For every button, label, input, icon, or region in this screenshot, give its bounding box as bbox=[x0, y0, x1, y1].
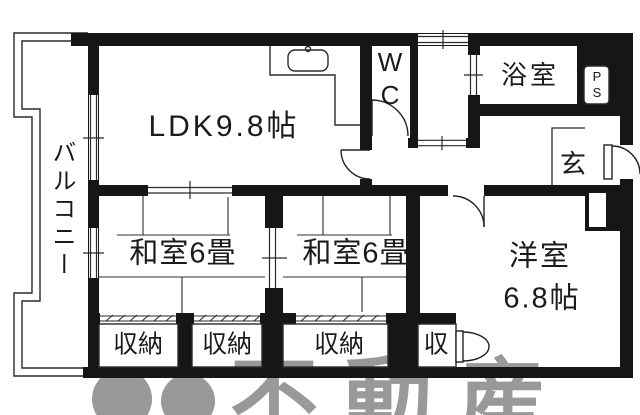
room-label-ldk: LDK9.8帖 bbox=[148, 112, 299, 142]
room-label-japanese-room-2: 和室6畳 bbox=[302, 240, 409, 269]
room-label-closet-1: 収納 bbox=[113, 333, 163, 358]
room-label-closet-small: 収 bbox=[423, 333, 448, 358]
room-label-genkan: 玄 bbox=[560, 151, 586, 177]
room-label-wc: WC bbox=[377, 47, 403, 113]
floorplan-page: 不動産 bbox=[0, 0, 640, 415]
room-label-closet-2: 収納 bbox=[202, 333, 252, 358]
room-label-western-room-size: 6.8帖 bbox=[503, 285, 580, 314]
room-label-ps: PS bbox=[591, 69, 604, 101]
room-label-closet-3: 収納 bbox=[314, 333, 364, 358]
room-label-balcony: バルコニー bbox=[49, 140, 73, 280]
room-label-japanese-room-1: 和室6畳 bbox=[129, 240, 236, 269]
kitchen-sink bbox=[288, 50, 328, 71]
kitchen-faucet bbox=[306, 47, 311, 52]
room-label-bathroom: 浴室 bbox=[501, 62, 559, 88]
room-label-western-room-name: 洋室 bbox=[509, 243, 571, 272]
